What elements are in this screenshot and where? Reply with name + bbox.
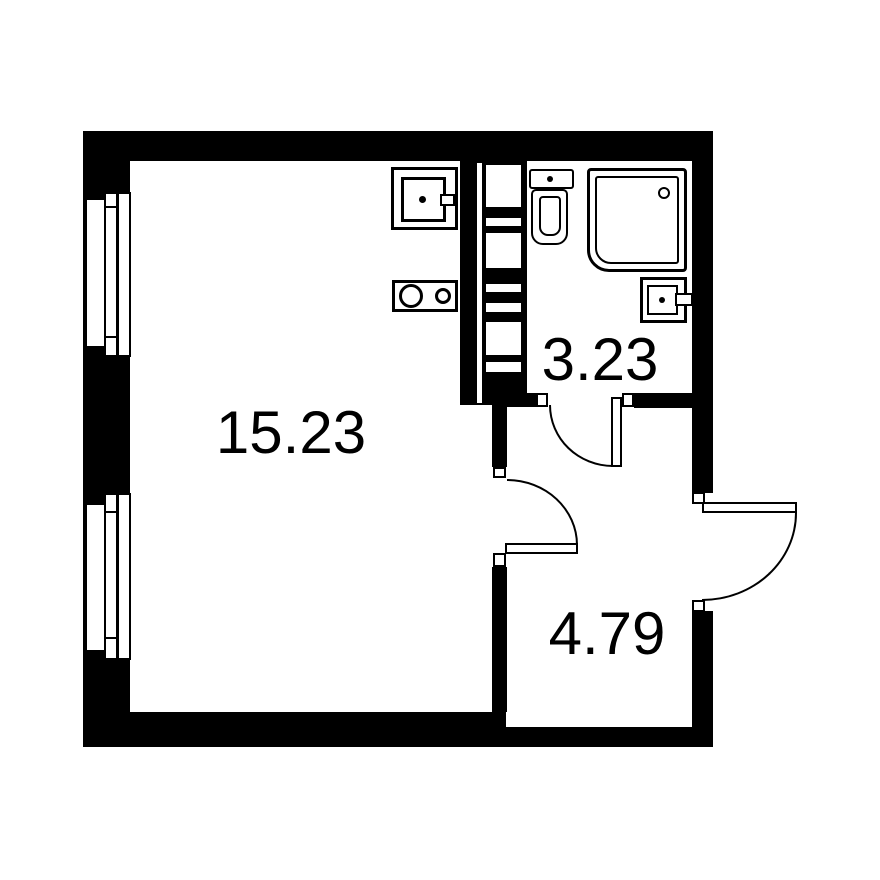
wall-top: [83, 131, 713, 161]
floor-plan: 15.23 3.23 4.79: [0, 0, 880, 880]
hallway-area-label: 4.79: [549, 604, 666, 664]
window-divider: [106, 336, 116, 338]
door-swing-icon: [549, 405, 613, 467]
door-swing-icon: [507, 479, 578, 545]
window-icon: [85, 192, 131, 357]
stove-icon: [392, 280, 458, 312]
window-sill: [85, 198, 106, 348]
wall-bottom-hallway: [506, 727, 713, 747]
wall-divider-upper: [492, 400, 507, 467]
wall-right-upper: [692, 131, 713, 493]
shower-icon: [587, 168, 687, 272]
door-jamb: [493, 467, 506, 478]
door-jamb: [536, 393, 548, 407]
bathroom-area-label: 3.23: [542, 330, 659, 390]
door-jamb: [622, 393, 634, 407]
main-room-area-label: 15.23: [216, 403, 366, 463]
wall-bathroom-south-right: [634, 393, 713, 408]
wall-right-lower: [692, 611, 713, 747]
door-swing-icon: [702, 513, 797, 601]
washbasin-drain: [659, 297, 665, 303]
door-jamb: [493, 553, 506, 567]
wall-bottom-main: [83, 712, 506, 747]
toilet-bowl-inner: [539, 196, 561, 236]
sink-faucet: [440, 194, 455, 206]
stove-burner-small: [435, 288, 451, 304]
sink-drain: [419, 196, 426, 203]
window-mullion: [116, 495, 119, 658]
vent-shaft-stripe: [486, 165, 521, 207]
toilet-icon: [529, 169, 574, 246]
window-divider: [106, 511, 116, 513]
door-leaf: [702, 502, 797, 513]
stove-burner-large: [399, 284, 423, 308]
vent-shaft-stripe: [486, 284, 521, 292]
window-divider: [106, 206, 116, 208]
kitchen-sink-icon: [391, 167, 458, 230]
wall-divider-lower: [492, 567, 507, 712]
vent-shaft-stripe: [486, 362, 521, 372]
shower-drain: [658, 187, 670, 199]
vent-shaft-stripe: [486, 322, 521, 355]
washbasin-icon: [640, 277, 693, 323]
door-jamb: [692, 600, 705, 612]
washbasin-faucet: [675, 293, 693, 306]
vent-shaft-stripe: [486, 233, 521, 268]
window-icon: [85, 493, 131, 660]
toilet-button: [547, 176, 553, 182]
window-mullion: [116, 194, 119, 355]
vent-shaft-stripe: [486, 303, 521, 312]
vent-shaft-gap: [477, 163, 482, 403]
window-divider: [106, 637, 116, 639]
vent-shaft-icon: [460, 161, 527, 405]
vent-shaft-stripe: [486, 218, 521, 226]
window-sill: [85, 503, 106, 652]
